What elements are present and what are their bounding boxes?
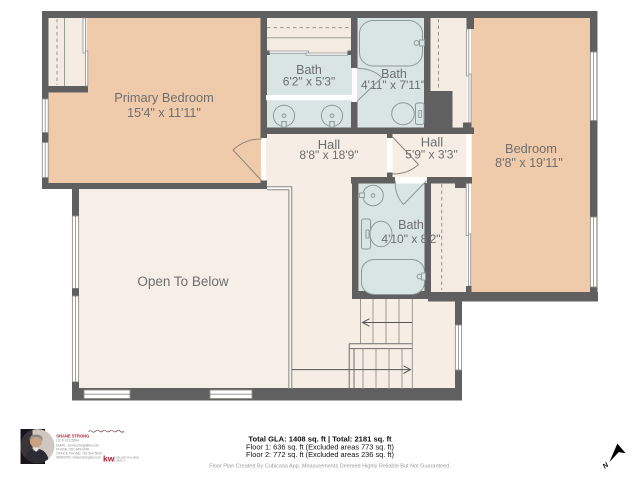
svg-text:15'4" x 11'11": 15'4" x 11'11" <box>127 106 201 120</box>
svg-text:REALTY: REALTY <box>116 459 126 463</box>
svg-text:8'8" x 19'11": 8'8" x 19'11" <box>495 156 563 170</box>
svg-text:Bath: Bath <box>398 218 424 232</box>
svg-text:WEBSITE: shanestrongkw.com: WEBSITE: shanestrongkw.com <box>56 456 101 460</box>
svg-text:8'8" x 18'9": 8'8" x 18'9" <box>299 148 358 162</box>
svg-text:Bedroom: Bedroom <box>505 141 557 156</box>
svg-text:4'10" x 8'2": 4'10" x 8'2" <box>381 232 440 246</box>
svg-text:6'2" x 5'3": 6'2" x 5'3" <box>283 75 335 89</box>
svg-text:Open To Below: Open To Below <box>137 274 229 289</box>
svg-text:Primary Bedroom: Primary Bedroom <box>114 90 214 105</box>
svg-text:4'11" x 7'11": 4'11" x 7'11" <box>361 78 425 92</box>
svg-text:LIC # 02125694: LIC # 02125694 <box>56 439 79 443</box>
svg-text:Floor Plan Created By Cubicasa: Floor Plan Created By Cubicasa App, Meas… <box>209 464 451 470</box>
svg-text:kw: kw <box>103 454 115 464</box>
svg-text:Floor 2: 772 sq. ft (Excluded: Floor 2: 772 sq. ft (Excluded areas 236 … <box>246 450 394 459</box>
